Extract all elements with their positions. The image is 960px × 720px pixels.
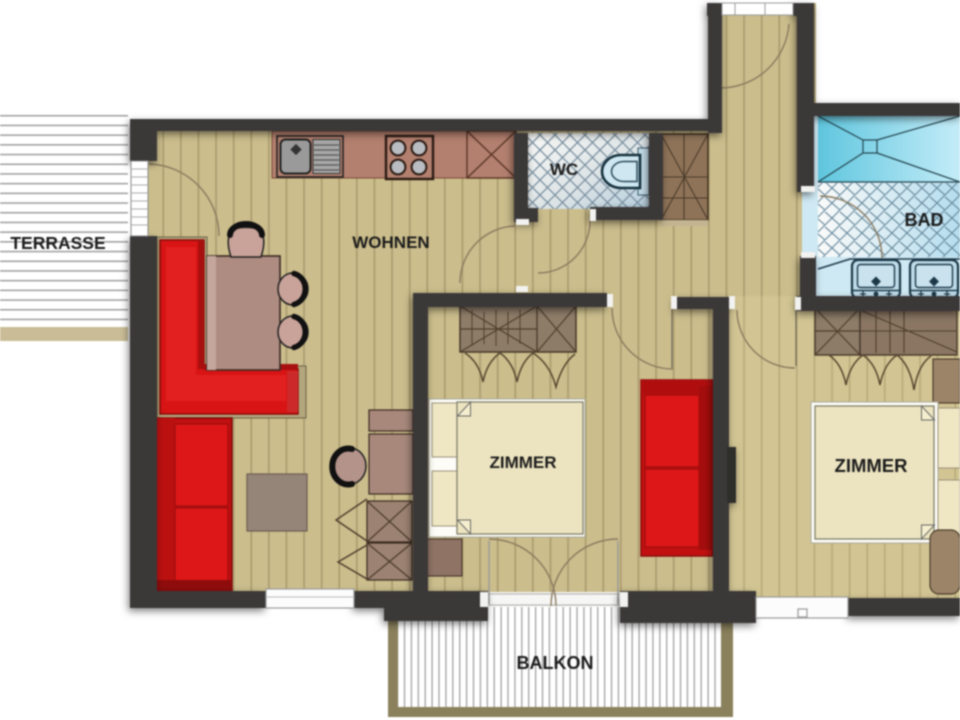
svg-text:ZIMMER: ZIMMER [835,455,908,476]
svg-text:BALKON: BALKON [517,653,594,673]
svg-text:BAD: BAD [905,210,944,230]
svg-text:WOHNEN: WOHNEN [352,233,429,252]
svg-text:TERRASSE: TERRASSE [10,233,105,253]
svg-text:WC: WC [550,160,578,179]
svg-text:ZIMMER: ZIMMER [489,453,556,472]
